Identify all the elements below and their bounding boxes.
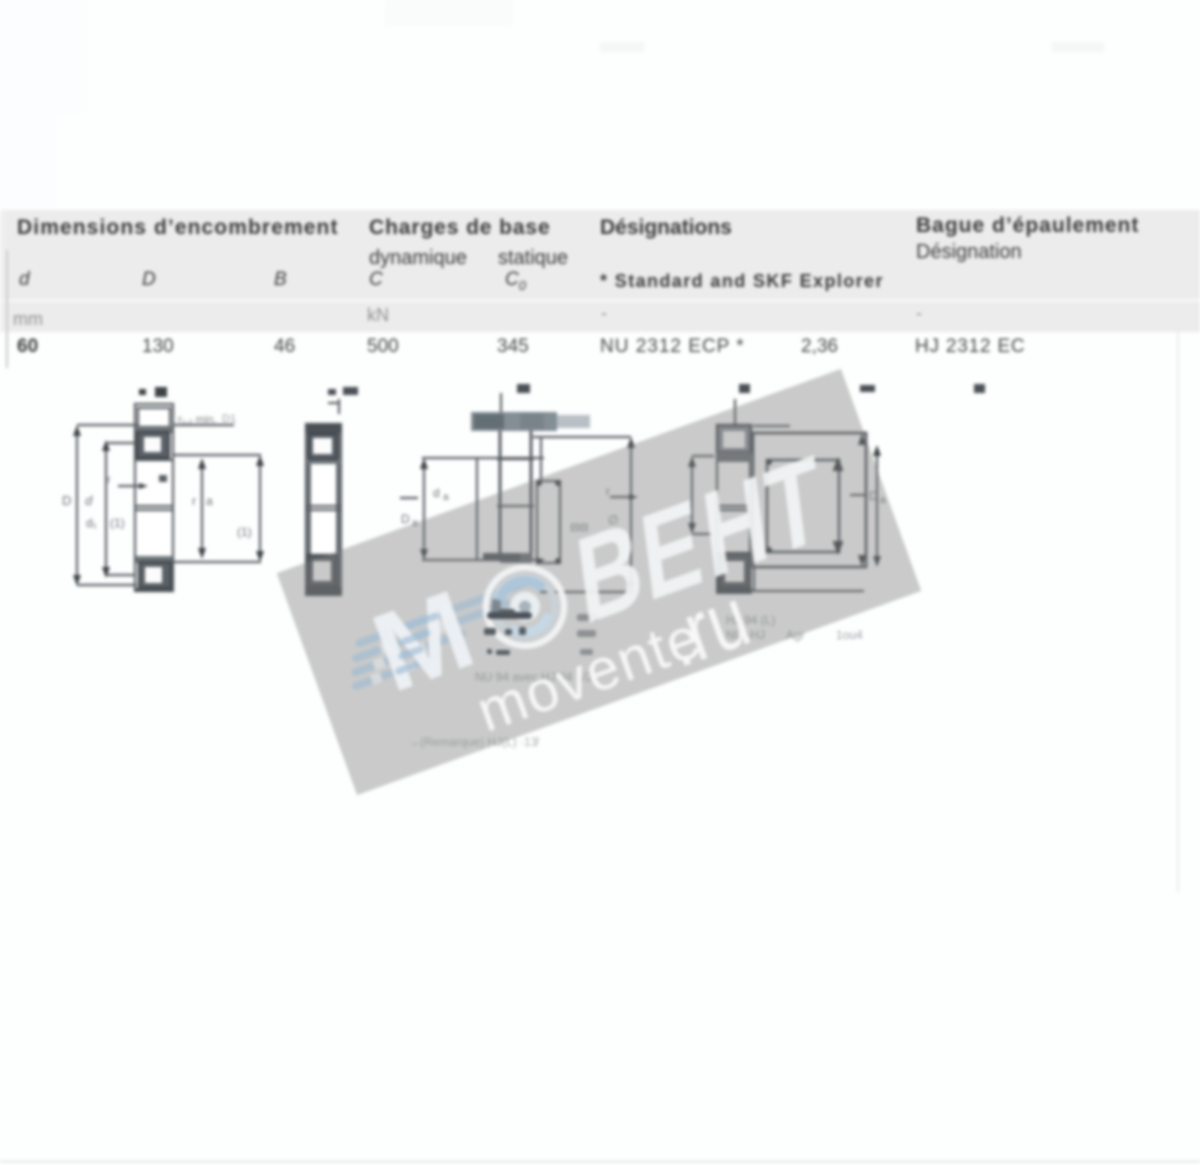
svg-text:a: a <box>443 492 449 503</box>
svg-text:(1): (1) <box>110 516 125 530</box>
svg-text:D: D <box>62 493 71 508</box>
svg-text:(1): (1) <box>237 525 252 539</box>
svg-text:1ou4: 1ou4 <box>836 628 863 642</box>
svg-text:r: r <box>107 474 111 486</box>
svg-text:d: d <box>433 486 440 500</box>
svg-text:r₁,₂ min.: r₁,₂ min. <box>178 414 217 426</box>
svg-text:D1: D1 <box>222 413 236 425</box>
svg-text:D: D <box>401 512 410 526</box>
svg-text:a: a <box>206 494 213 508</box>
svg-text:r: r <box>192 494 196 508</box>
svg-text:d: d <box>85 493 93 508</box>
svg-text:d₁: d₁ <box>86 516 97 530</box>
